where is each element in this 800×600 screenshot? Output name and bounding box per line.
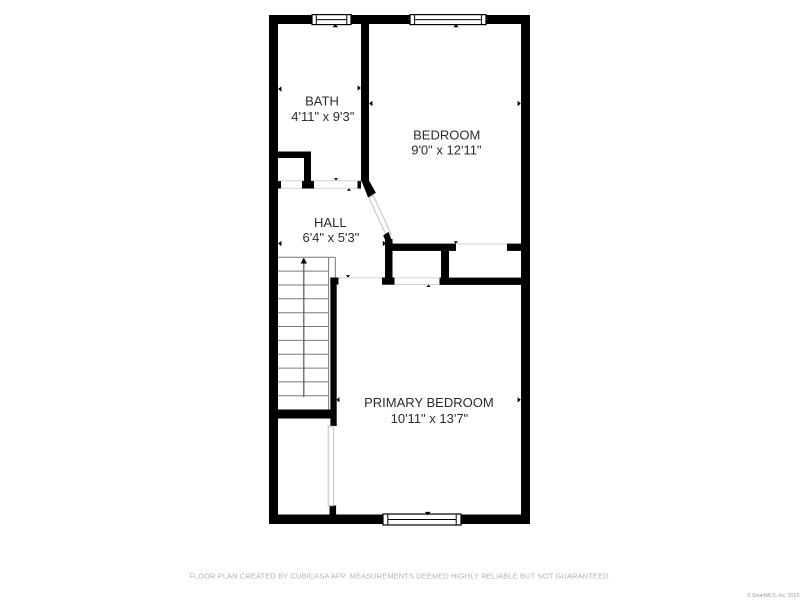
svg-text:PRIMARY BEDROOM: PRIMARY BEDROOM: [364, 395, 494, 410]
svg-text:6'4" x 5'3": 6'4" x 5'3": [302, 230, 359, 245]
svg-text:HALL: HALL: [314, 215, 347, 230]
svg-text:BEDROOM: BEDROOM: [413, 127, 480, 142]
svg-text:FLOOR PLAN CREATED BY CUBICASA: FLOOR PLAN CREATED BY CUBICASA APP. MEAS…: [189, 572, 611, 581]
svg-text:10'11" x 13'7": 10'11" x 13'7": [391, 411, 469, 426]
svg-text:4'11" x 9'3": 4'11" x 9'3": [291, 109, 354, 124]
svg-text:BATH: BATH: [305, 94, 339, 109]
svg-text:9'0" x 12'11": 9'0" x 12'11": [411, 143, 482, 158]
svg-text:© SmartMLS, Inc. 2019: © SmartMLS, Inc. 2019: [747, 592, 799, 599]
